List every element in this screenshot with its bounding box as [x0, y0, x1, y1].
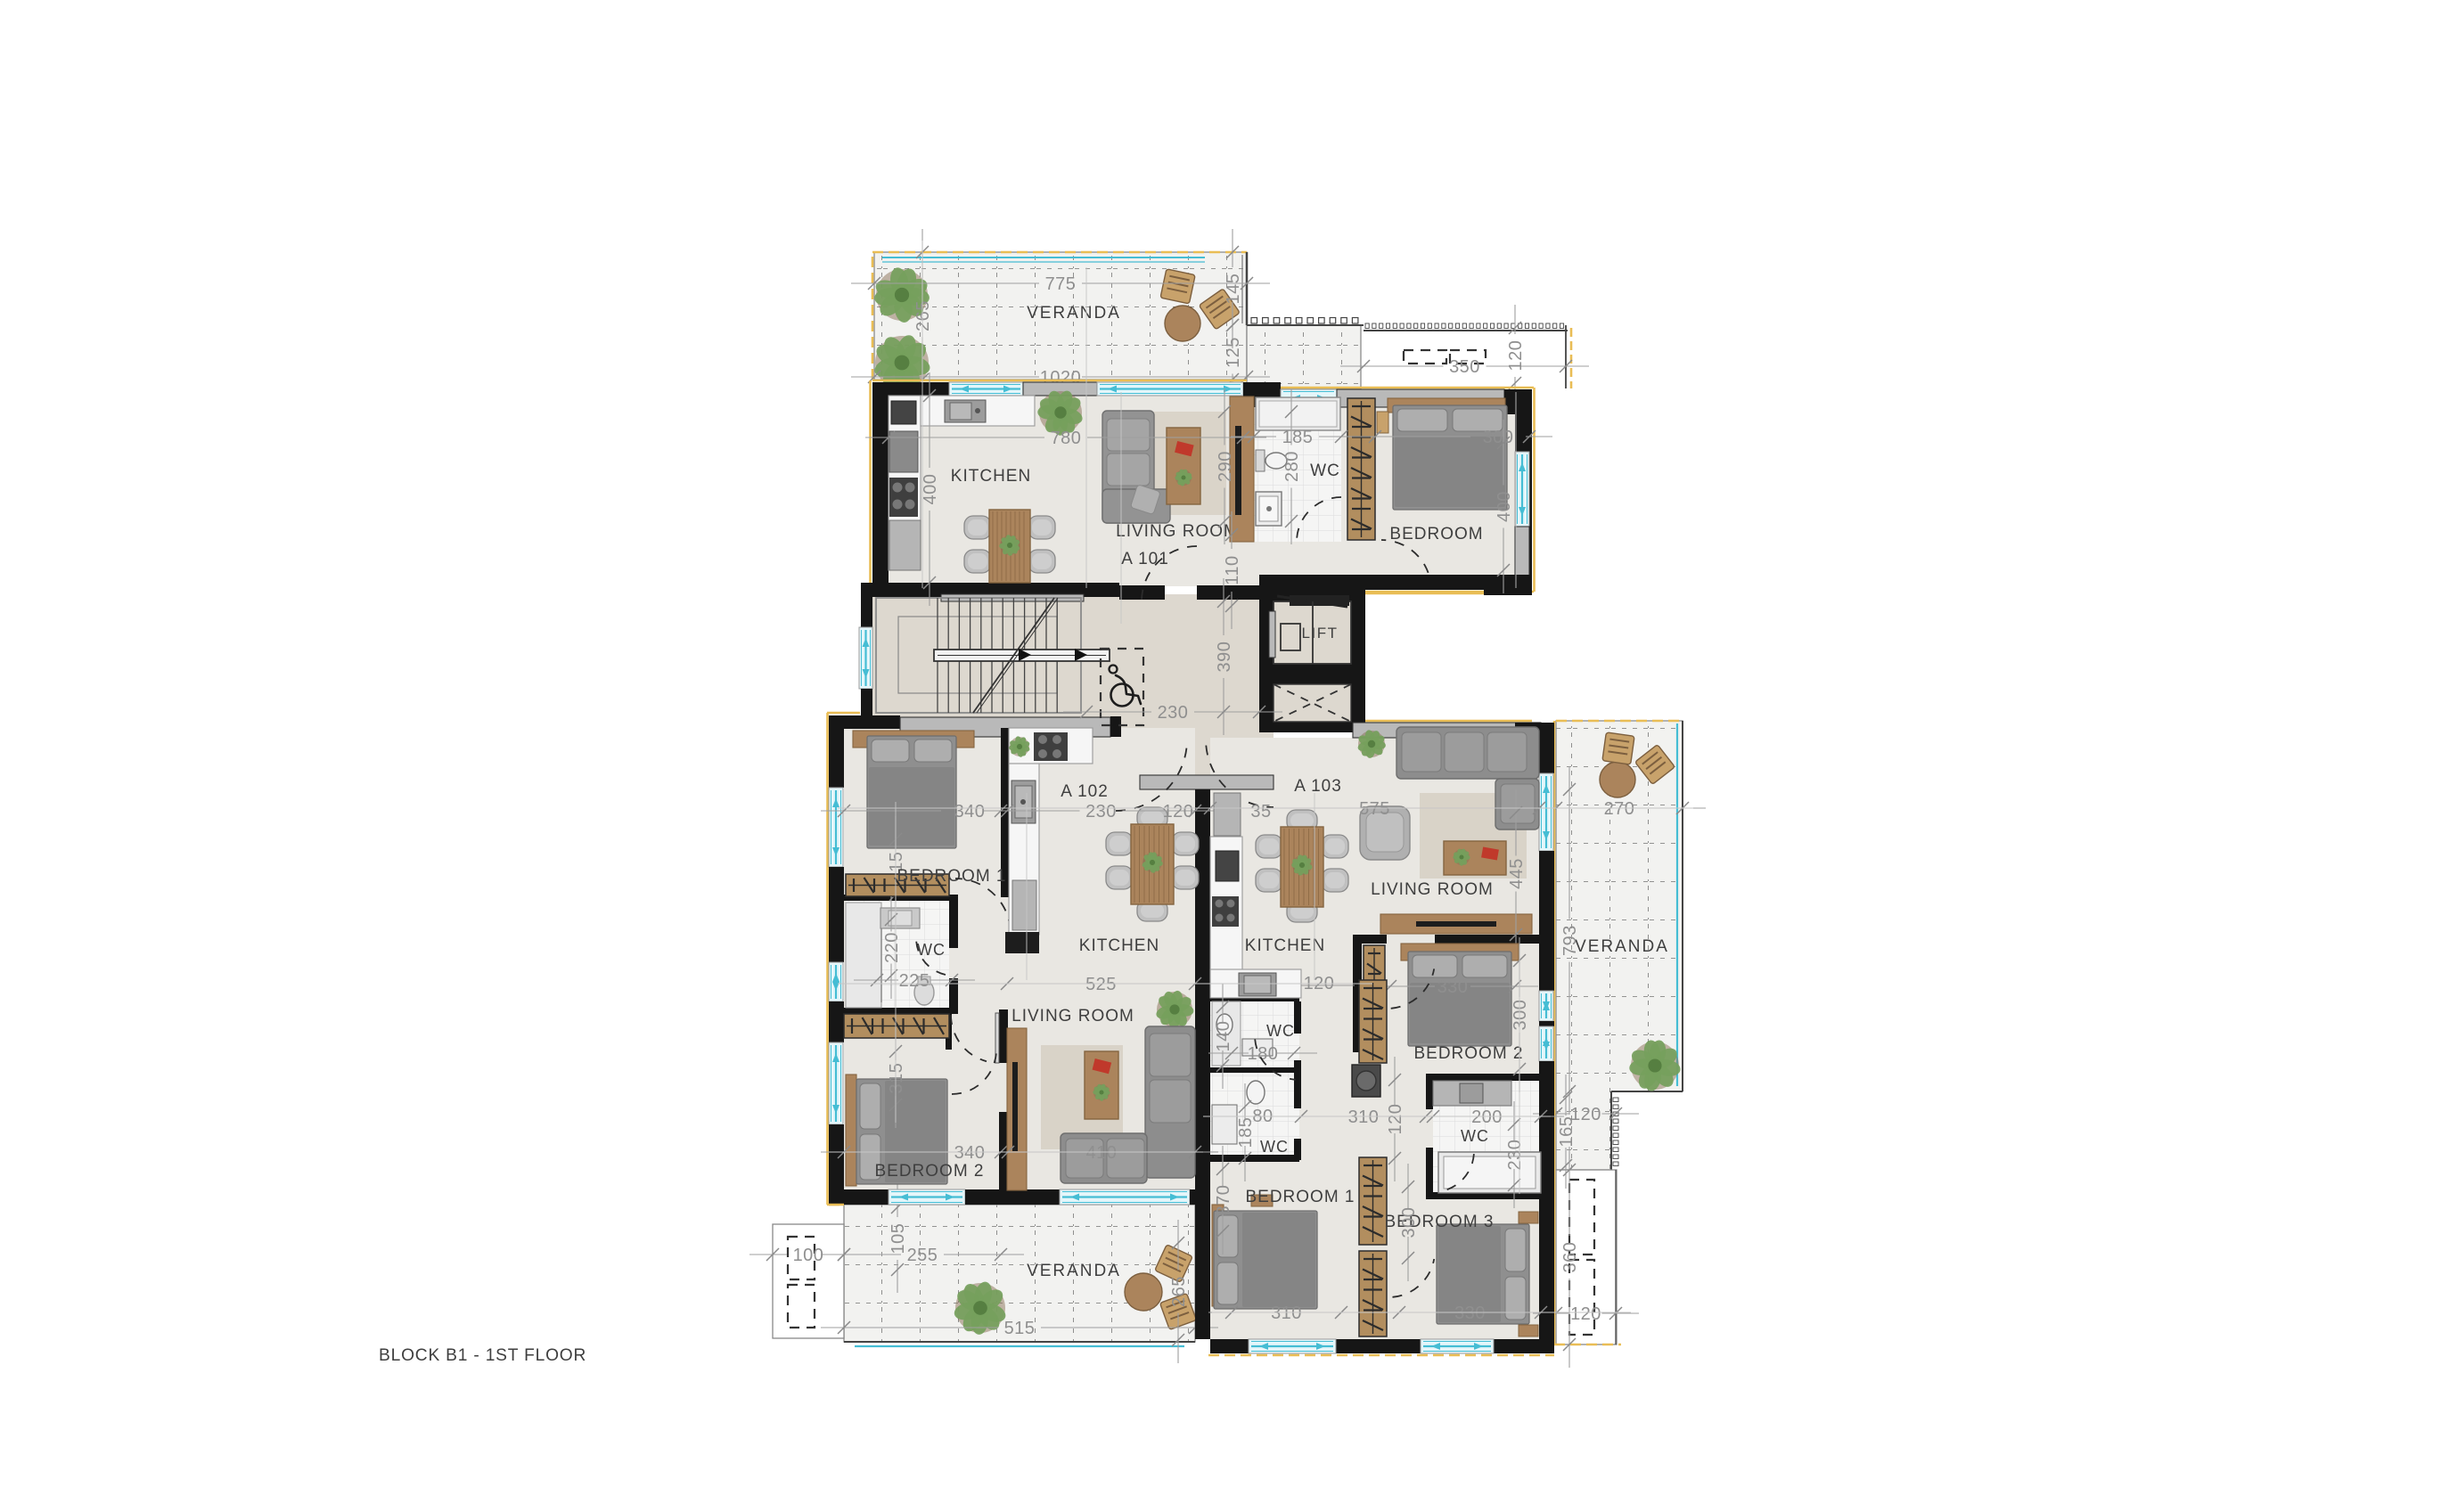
svg-text:WC: WC — [1266, 1022, 1295, 1040]
svg-text:265: 265 — [1169, 1276, 1189, 1307]
svg-text:120: 120 — [1570, 1304, 1601, 1324]
svg-text:145: 145 — [1224, 274, 1243, 305]
svg-text:270: 270 — [1604, 799, 1635, 819]
svg-text:BEDROOM 1: BEDROOM 1 — [1245, 1188, 1355, 1206]
svg-text:410: 410 — [1086, 1143, 1118, 1163]
svg-text:BLOCK B1 - 1ST FLOOR: BLOCK B1 - 1ST FLOOR — [379, 1346, 586, 1365]
svg-text:KITCHEN: KITCHEN — [1245, 936, 1325, 955]
svg-text:220: 220 — [882, 932, 902, 963]
svg-text:A 102: A 102 — [1061, 782, 1109, 801]
svg-text:310: 310 — [1271, 1304, 1302, 1323]
svg-text:793: 793 — [1560, 925, 1580, 956]
svg-text:BEDROOM: BEDROOM — [1389, 525, 1483, 544]
svg-text:LIVING ROOM: LIVING ROOM — [1011, 1007, 1134, 1026]
svg-text:BEDROOM 2: BEDROOM 2 — [874, 1162, 984, 1181]
svg-text:300: 300 — [1511, 1000, 1530, 1031]
svg-text:VERANDA: VERANDA — [1027, 304, 1121, 323]
svg-text:230: 230 — [1505, 1140, 1525, 1171]
svg-text:VERANDA: VERANDA — [1027, 1262, 1121, 1280]
svg-text:775: 775 — [1045, 274, 1077, 294]
svg-text:KITCHEN: KITCHEN — [951, 467, 1031, 486]
svg-text:WC: WC — [1310, 462, 1340, 480]
svg-text:140: 140 — [1214, 1021, 1233, 1052]
svg-text:BEDROOM 1: BEDROOM 1 — [897, 867, 1006, 886]
svg-text:265: 265 — [913, 300, 933, 331]
svg-text:100: 100 — [793, 1246, 824, 1265]
svg-text:110: 110 — [1223, 555, 1242, 584]
svg-text:120: 120 — [1506, 340, 1526, 372]
svg-text:280: 280 — [1282, 451, 1302, 482]
svg-text:230: 230 — [1158, 703, 1189, 723]
svg-text:315: 315 — [887, 1063, 906, 1094]
svg-text:370: 370 — [1214, 1185, 1233, 1216]
svg-text:340: 340 — [954, 802, 986, 821]
svg-text:230: 230 — [1085, 802, 1117, 821]
svg-text:400: 400 — [1495, 491, 1514, 522]
svg-text:A 103: A 103 — [1294, 777, 1342, 796]
svg-text:VERANDA: VERANDA — [1575, 937, 1669, 956]
svg-text:310: 310 — [1348, 1107, 1380, 1127]
svg-text:255: 255 — [907, 1246, 938, 1265]
svg-text:390: 390 — [1215, 642, 1234, 673]
svg-text:445: 445 — [1507, 858, 1527, 889]
svg-text:780: 780 — [1051, 429, 1082, 448]
svg-text:225: 225 — [899, 971, 930, 991]
svg-text:525: 525 — [1085, 975, 1117, 994]
svg-text:400: 400 — [921, 474, 940, 505]
svg-text:LIFT: LIFT — [1302, 625, 1339, 642]
svg-text:WC: WC — [1260, 1138, 1289, 1156]
svg-text:35: 35 — [1250, 802, 1271, 821]
svg-text:200: 200 — [1471, 1107, 1503, 1127]
svg-text:WC: WC — [917, 941, 946, 959]
svg-text:120: 120 — [1386, 1104, 1405, 1135]
svg-text:300: 300 — [1399, 1207, 1419, 1238]
svg-text:125: 125 — [1224, 337, 1243, 368]
svg-text:BEDROOM 2: BEDROOM 2 — [1413, 1044, 1523, 1063]
svg-text:120: 120 — [1163, 802, 1194, 821]
svg-text:290: 290 — [1216, 451, 1235, 482]
svg-text:120: 120 — [1570, 1105, 1601, 1124]
svg-text:LIVING ROOM: LIVING ROOM — [1371, 880, 1494, 899]
svg-text:185: 185 — [1282, 428, 1314, 447]
svg-text:WC: WC — [1461, 1127, 1489, 1145]
svg-text:330: 330 — [1454, 1304, 1486, 1323]
svg-text:515: 515 — [1004, 1319, 1036, 1338]
svg-text:185: 185 — [1236, 1117, 1256, 1148]
svg-text:KITCHEN: KITCHEN — [1079, 936, 1159, 955]
svg-text:330: 330 — [1437, 977, 1469, 997]
svg-text:340: 340 — [954, 1143, 986, 1163]
svg-text:105: 105 — [889, 1223, 908, 1255]
svg-text:575: 575 — [1359, 799, 1390, 819]
svg-text:350: 350 — [1449, 357, 1480, 377]
svg-text:360: 360 — [1560, 1242, 1580, 1273]
